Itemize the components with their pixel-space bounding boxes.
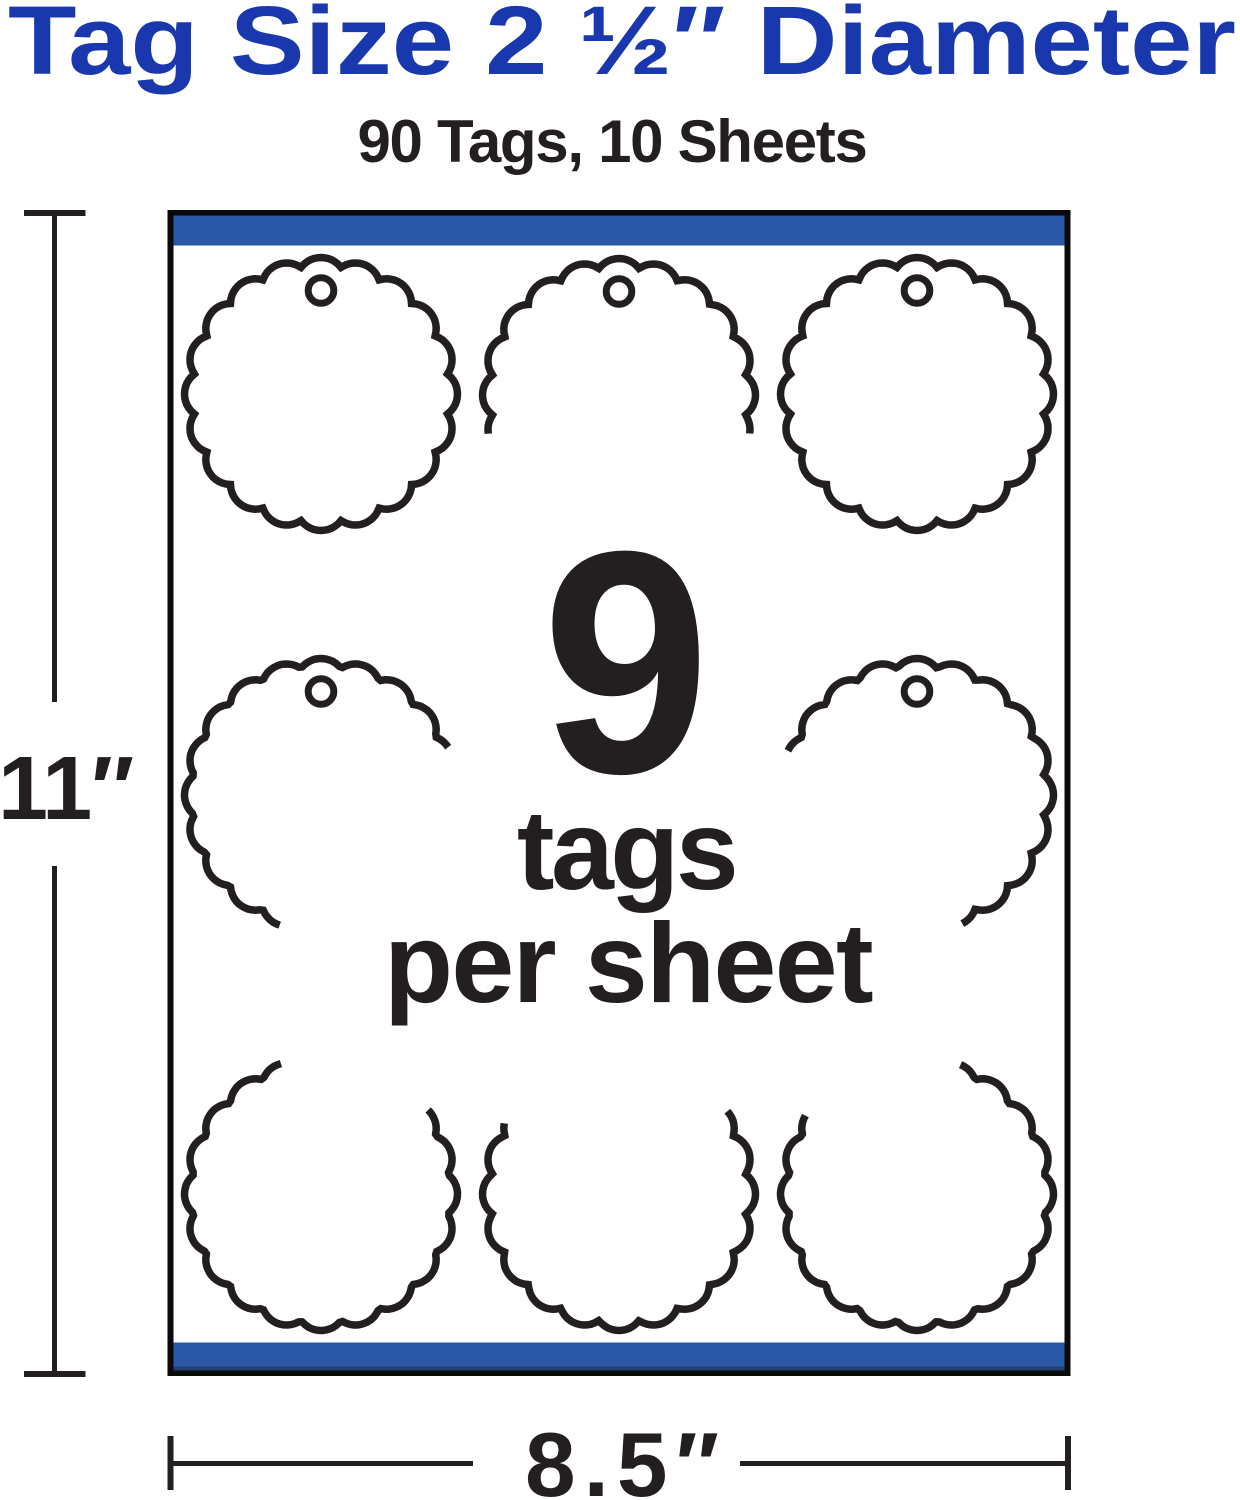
svg-text:11″: 11″: [0, 739, 133, 839]
svg-text:90 Tags, 10 Sheets: 90 Tags, 10 Sheets: [357, 108, 866, 175]
svg-text:per sheet: per sheet: [384, 900, 873, 1026]
svg-text:Tag Size 2 ½″ Diameter: Tag Size 2 ½″ Diameter: [8, 0, 1236, 95]
svg-text:8.5″: 8.5″: [525, 1415, 727, 1500]
svg-text:tags: tags: [517, 787, 735, 913]
